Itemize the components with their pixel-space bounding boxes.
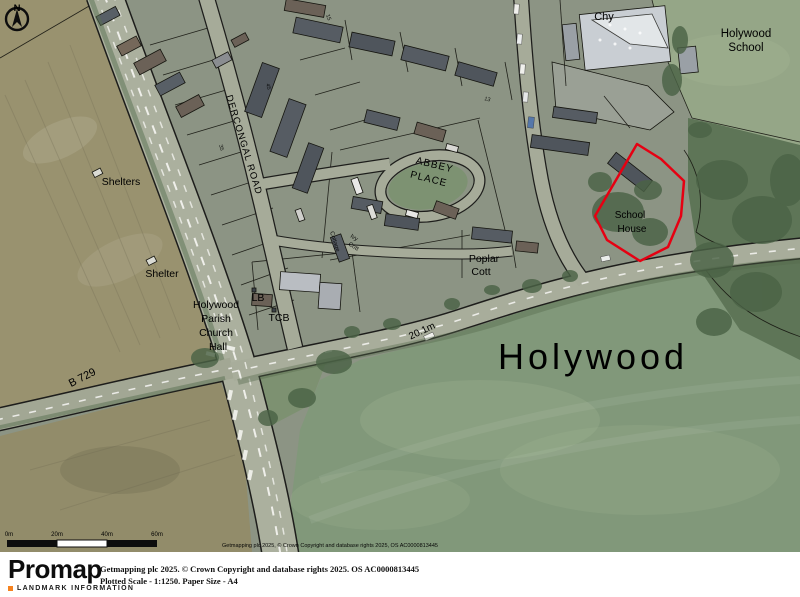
label-cott: Cott [471, 266, 490, 278]
footer-bar: Promap LANDMARK INFORMATION Getmapping p… [0, 552, 800, 597]
label-holywood-school-1: Holywood [721, 28, 772, 40]
label-church-1: Holywood [193, 299, 239, 311]
scale-tick: 40m [101, 532, 113, 538]
label-chy: Chy [594, 11, 614, 23]
landmark-square-icon [8, 586, 13, 591]
label-shelters: Shelters [102, 176, 141, 188]
label-school-house-1: School [615, 210, 646, 221]
map-canvas[interactable]: Chy Holywood School Shelters Shelter Hol… [0, 0, 800, 552]
label-town: Holywood [498, 336, 688, 377]
scale-tick: 20m [51, 532, 63, 538]
footer-copyright-block: Getmapping plc 2025. © Crown Copyright a… [100, 564, 419, 588]
label-poplar: Poplar [469, 253, 500, 265]
promap-page: Chy Holywood School Shelters Shelter Hol… [0, 0, 800, 597]
label-shelter: Shelter [145, 268, 179, 280]
label-church-2: Parish [201, 313, 231, 325]
label-school-house-2: House [618, 224, 647, 235]
footer-scale-line: Plotted Scale - 1:1250. Paper Size - A4 [100, 576, 419, 588]
compass-n-letter: N [14, 3, 21, 14]
label-holywood-school-2: School [728, 42, 763, 54]
footer-copyright-line: Getmapping plc 2025. © Crown Copyright a… [100, 564, 419, 576]
map-copyright-overlay: Getmapping plc 2025, © Crown Copyright a… [222, 542, 438, 549]
scale-tick: 60m [151, 532, 163, 538]
label-church-4: Hall [209, 341, 227, 353]
label-lb: LB [252, 292, 265, 304]
scale-tick: 0m [5, 532, 13, 538]
label-church-3: Church [199, 327, 233, 339]
label-tcb: TCB [269, 312, 290, 324]
